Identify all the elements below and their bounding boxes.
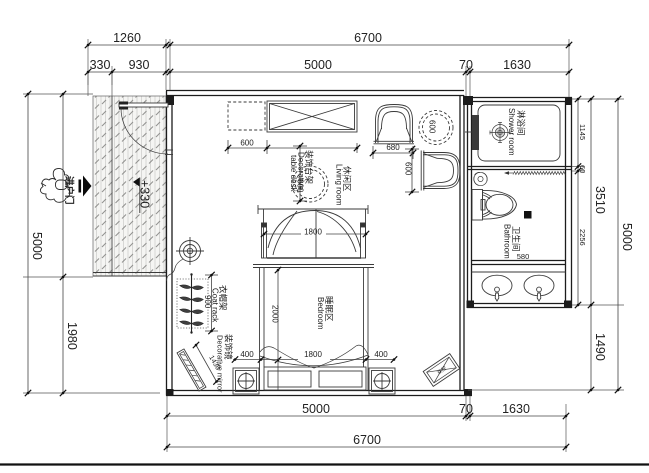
svg-text:+330: +330: [138, 180, 152, 208]
svg-text:6700: 6700: [354, 31, 382, 45]
svg-text:3510: 3510: [593, 186, 607, 214]
svg-text:600: 600: [404, 162, 413, 176]
svg-text:5000: 5000: [30, 232, 44, 260]
svg-text:5000: 5000: [304, 58, 332, 72]
svg-text:5000: 5000: [620, 223, 634, 251]
svg-text:5000: 5000: [302, 402, 330, 416]
svg-text:6700: 6700: [353, 433, 381, 447]
svg-text:680: 680: [386, 143, 400, 152]
svg-text:400: 400: [374, 350, 388, 359]
svg-text:淋浴间: 淋浴间: [516, 110, 526, 136]
svg-text:70: 70: [459, 402, 473, 416]
svg-text:1630: 1630: [502, 402, 530, 416]
svg-text:930: 930: [129, 58, 150, 72]
svg-text:1800: 1800: [304, 228, 322, 237]
svg-text:60: 60: [578, 165, 587, 173]
svg-text:70: 70: [459, 58, 473, 72]
svg-text:Shower room: Shower room: [507, 108, 516, 156]
svg-text:1145: 1145: [578, 124, 587, 140]
svg-text:1980: 1980: [65, 322, 79, 350]
svg-text:330: 330: [90, 58, 111, 72]
svg-text:2000: 2000: [271, 305, 280, 323]
svg-text:600: 600: [296, 179, 305, 193]
svg-text:Living room: Living room: [335, 164, 344, 206]
svg-text:Bedroom: Bedroom: [316, 297, 325, 330]
svg-text:600: 600: [428, 120, 437, 134]
svg-text:卫生间: 卫生间: [511, 226, 521, 252]
svg-text:600: 600: [240, 139, 254, 148]
svg-text:1490: 1490: [593, 333, 607, 361]
svg-text:1260: 1260: [113, 31, 141, 45]
svg-text:Decorative mirror: Decorative mirror: [216, 335, 225, 393]
svg-text:Bathroom: Bathroom: [503, 224, 512, 259]
svg-text:2256: 2256: [578, 229, 587, 246]
svg-text:1800: 1800: [304, 350, 322, 359]
svg-text:1630: 1630: [503, 58, 531, 72]
svg-text:400: 400: [240, 350, 254, 359]
svg-text:Coat rack: Coat rack: [211, 288, 220, 323]
svg-text:580: 580: [517, 252, 530, 261]
svg-text:进户门: 进户门: [63, 176, 75, 205]
